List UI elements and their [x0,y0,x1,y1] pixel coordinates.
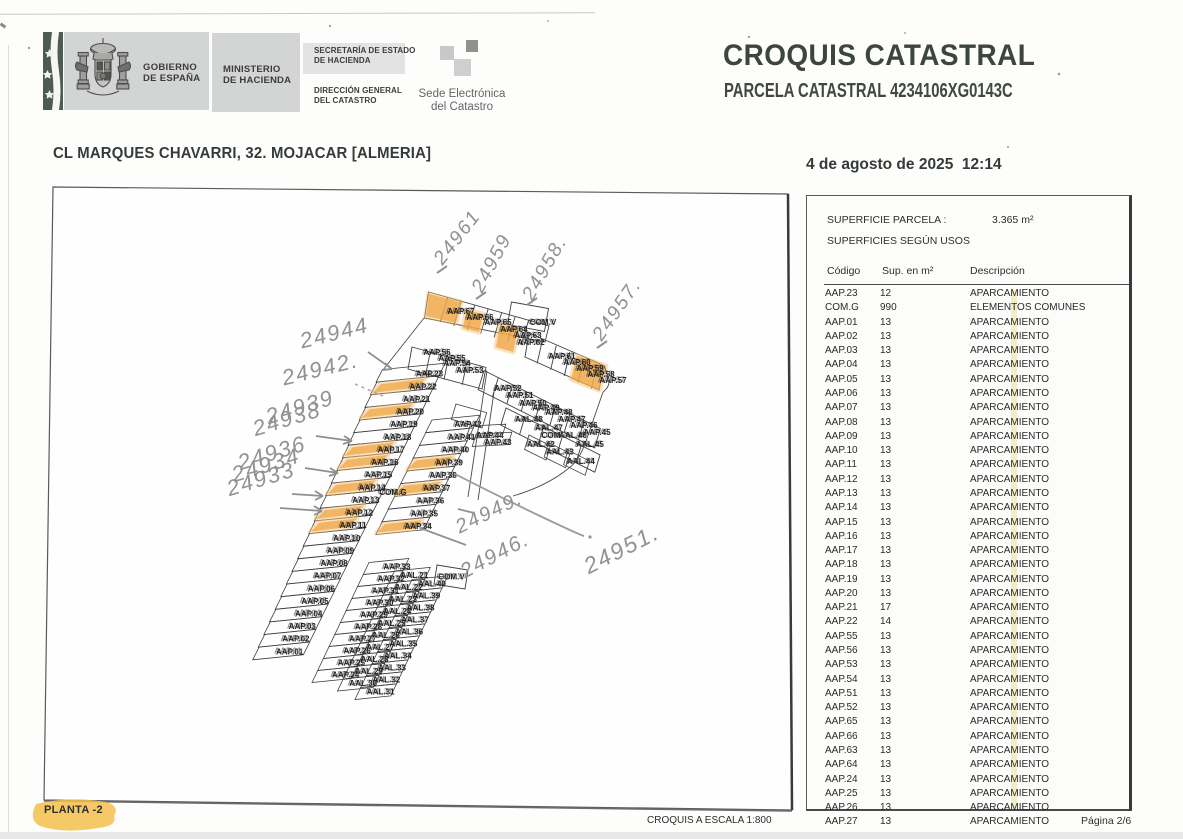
svg-text:AAP.19: AAP.19 [390,420,418,429]
svg-text:AAL.31: AAL.31 [367,688,395,697]
svg-text:AAP.35: AAP.35 [411,509,439,518]
svg-text:AAP.20: AAP.20 [397,408,425,417]
svg-text:COM.G: COM.G [379,488,406,497]
svg-text:AAL.34: AAL.34 [384,652,412,661]
svg-text:AAP.03: AAP.03 [289,622,317,631]
svg-text:AAP.15: AAP.15 [365,471,393,480]
svg-text:AAL.38: AAL.38 [407,604,435,613]
svg-text:AAL.43: AAL.43 [546,448,574,457]
svg-text:AAP.04: AAP.04 [295,610,323,619]
svg-text:AAP.22: AAP.22 [409,382,437,391]
svg-text:AAP.18: AAP.18 [384,433,412,442]
svg-text:AAP.05: AAP.05 [301,597,329,606]
svg-text:AAP.12: AAP.12 [346,509,374,518]
svg-text:AAP.11: AAP.11 [340,521,367,530]
svg-text:AAP.38: AAP.38 [429,471,457,480]
svg-text:AAP.40: AAP.40 [442,446,470,455]
svg-text:AAL.35: AAL.35 [390,640,418,649]
svg-text:AAP.07: AAP.07 [314,572,342,581]
svg-text:AAP.37: AAP.37 [423,484,451,493]
svg-text:AAL.39: AAL.39 [412,592,440,601]
svg-text:AAP.09: AAP.09 [327,546,355,555]
svg-text:AAL.45: AAL.45 [576,440,604,449]
svg-text:AAL.32: AAL.32 [372,676,400,685]
svg-text:AAP.53: AAP.53 [456,366,484,375]
svg-text:AAL.36: AAL.36 [395,628,423,637]
svg-text:COM.V: COM.V [438,573,465,582]
svg-text:AAP.17: AAP.17 [378,445,406,454]
svg-text:AAP.57: AAP.57 [599,376,627,385]
svg-text:AAP.23: AAP.23 [416,370,444,379]
svg-text:AAP.36: AAP.36 [417,497,445,506]
svg-text:AAP.02: AAP.02 [282,635,310,644]
svg-text:AAP.39: AAP.39 [436,459,464,468]
svg-text:AAP.13: AAP.13 [352,496,380,505]
svg-text:AAP.10: AAP.10 [333,534,361,543]
svg-text:AAP.34: AAP.34 [404,522,432,531]
svg-text:AAP.08: AAP.08 [320,559,348,568]
svg-text:AAP.21: AAP.21 [403,395,431,404]
svg-text:AAL.33: AAL.33 [378,664,406,673]
svg-text:AAP.16: AAP.16 [371,458,399,467]
svg-text:AAL.44: AAL.44 [567,457,595,466]
svg-text:AAP.01: AAP.01 [276,647,304,656]
svg-text:COM.V: COM.V [530,318,557,327]
svg-text:AAL.37: AAL.37 [401,616,429,625]
svg-text:AAP.06: AAP.06 [308,584,336,593]
svg-text:AAP.41: AAP.41 [448,433,476,442]
